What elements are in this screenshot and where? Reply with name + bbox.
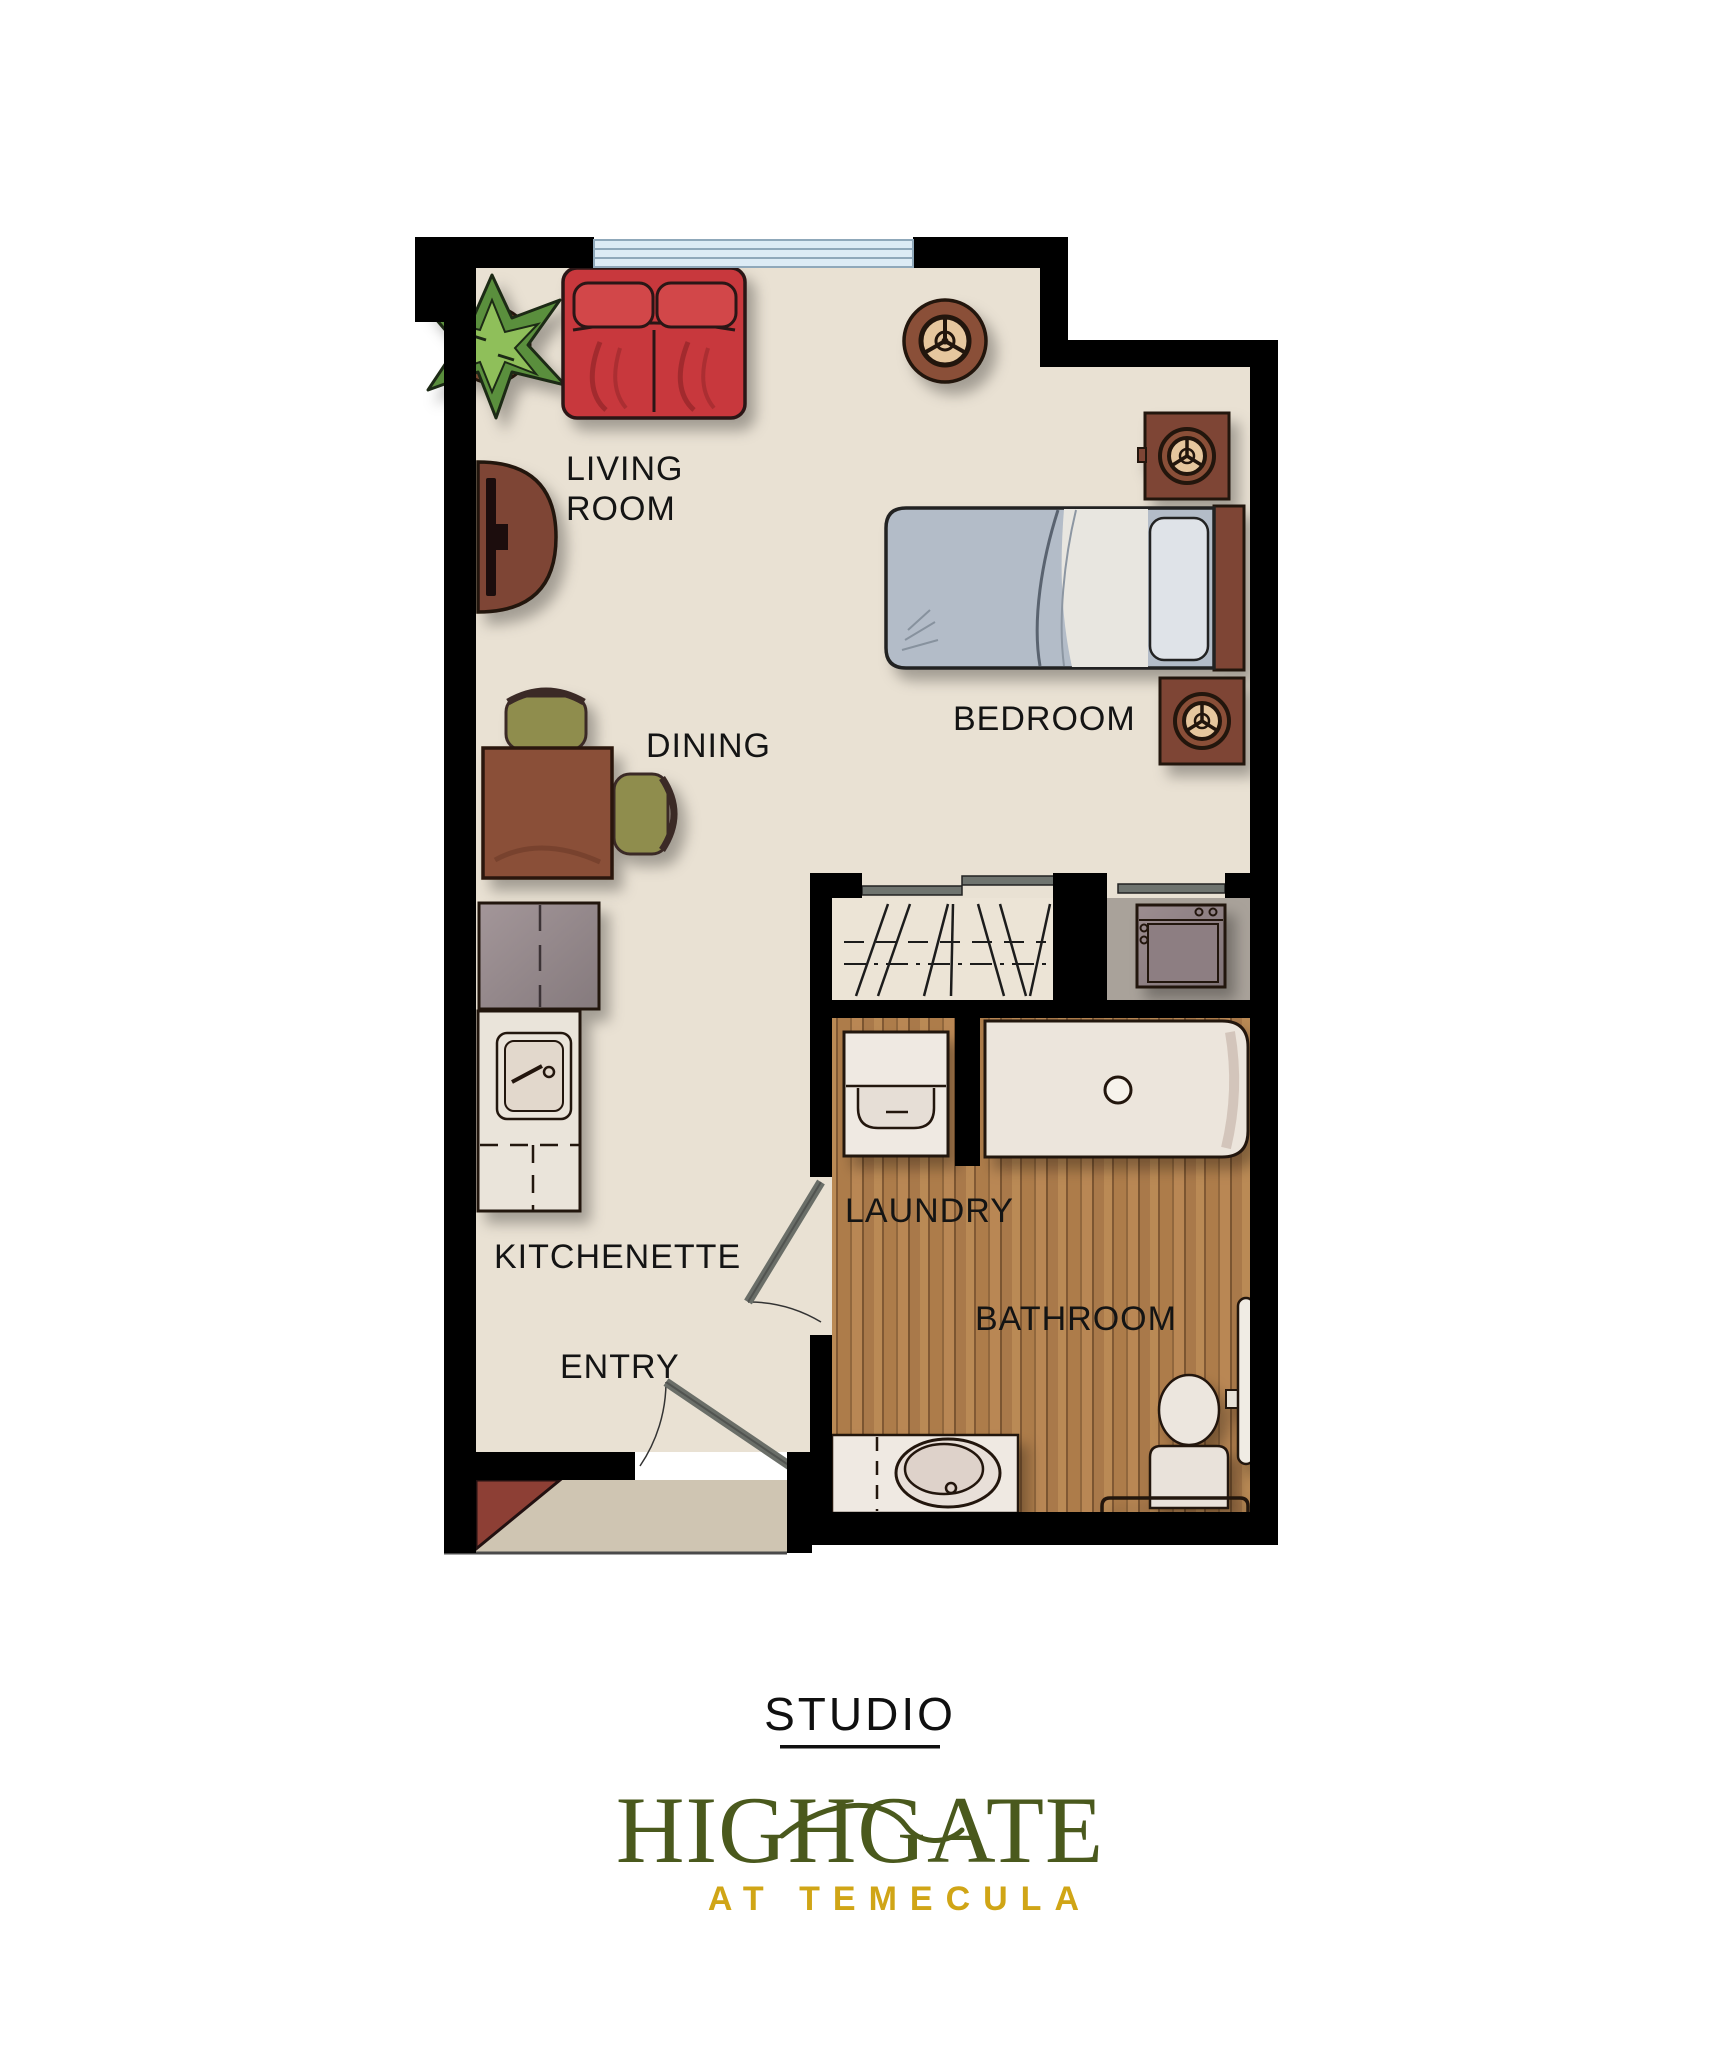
dining-chair xyxy=(506,691,586,750)
nightstand-lamp xyxy=(1160,678,1244,764)
brand-name: HIGHGATE xyxy=(616,1777,1104,1883)
bedroom-label: BEDROOM xyxy=(953,700,1136,738)
loveseat-sofa xyxy=(563,268,745,418)
plan-title: STUDIO xyxy=(764,1688,956,1740)
pillow xyxy=(1150,518,1208,660)
entry-label: ENTRY xyxy=(560,1348,680,1386)
living-room-label-line1: LIVING xyxy=(566,450,683,488)
stacked-washer-dryer xyxy=(1137,905,1225,987)
headboard xyxy=(1214,506,1244,670)
living-room-label-line2: ROOM xyxy=(566,490,676,528)
logo-block: STUDIO HIGHGATE AT TEMECULA xyxy=(616,1688,1104,1918)
floor-plan-canvas: LIVING ROOM DINING BEDROOM KITCHENETTE E… xyxy=(0,0,1718,2048)
bathroom-label: BATHROOM xyxy=(975,1300,1177,1338)
round-side-table-lamp xyxy=(904,300,986,382)
laundry-label: LAUNDRY xyxy=(845,1192,1014,1230)
kitchenette-label: KITCHENETTE xyxy=(494,1238,741,1276)
title-underline xyxy=(780,1745,940,1749)
nightstand-lamp xyxy=(1138,413,1229,499)
floor-plan-page: LIVING ROOM DINING BEDROOM KITCHENETTE E… xyxy=(0,0,1718,2048)
kitchen-sink-counter xyxy=(478,1011,580,1211)
vanity-sink xyxy=(832,1435,1018,1513)
refrigerator xyxy=(479,903,599,1009)
bathtub xyxy=(985,1021,1248,1157)
washer xyxy=(844,1032,948,1156)
brand-tagline: AT TEMECULA xyxy=(708,1880,1092,1918)
closet-floor xyxy=(832,898,1053,1000)
dining-chair xyxy=(614,774,674,854)
twin-bed xyxy=(886,506,1244,670)
dining-label: DINING xyxy=(646,727,771,765)
window xyxy=(594,240,913,267)
